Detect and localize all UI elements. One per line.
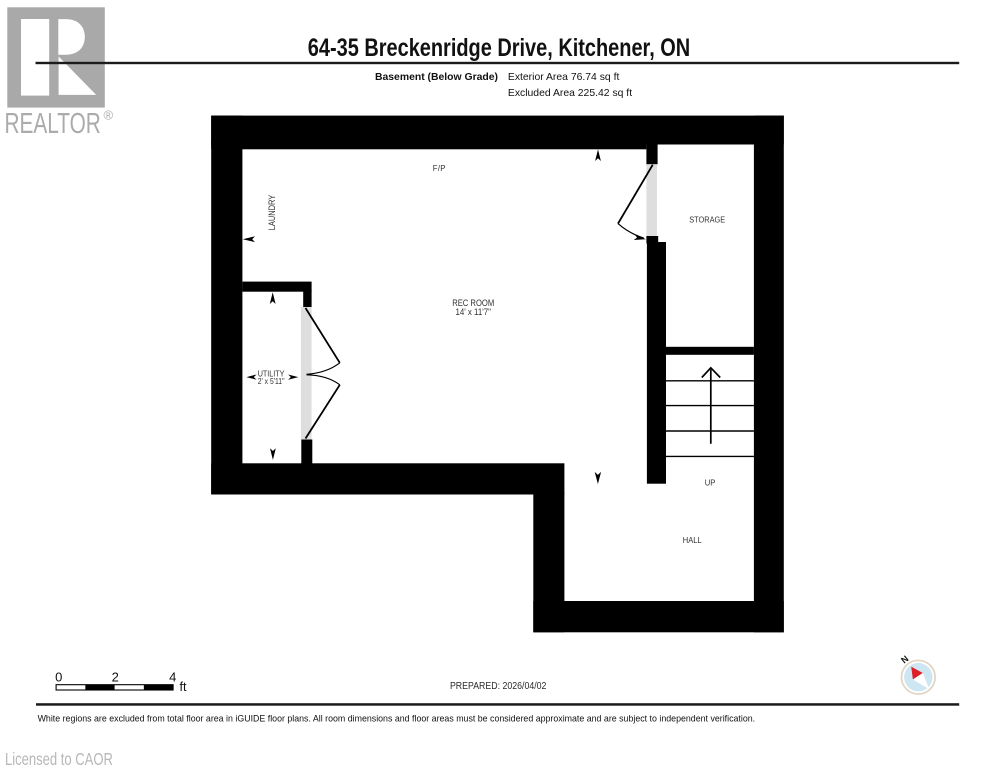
svg-text:2' x 5'11": 2' x 5'11" [258, 377, 285, 386]
svg-text:PREPARED: 2026/04/02: PREPARED: 2026/04/02 [450, 681, 547, 692]
svg-text:F/P: F/P [433, 164, 446, 173]
svg-text:0: 0 [55, 670, 62, 685]
svg-text:ft: ft [180, 680, 187, 694]
svg-text:2: 2 [112, 670, 119, 685]
svg-text:Licensed to CAOR: Licensed to CAOR [5, 750, 113, 768]
svg-text:4: 4 [169, 670, 176, 685]
svg-text:White regions are excluded fro: White regions are excluded from total fl… [38, 714, 756, 724]
svg-text:14' x 11'7": 14' x 11'7" [455, 307, 491, 317]
svg-text:HALL: HALL [683, 536, 702, 545]
svg-text:LAUNDRY: LAUNDRY [267, 195, 277, 231]
svg-text:STORAGE: STORAGE [689, 216, 725, 225]
svg-text:UP: UP [705, 478, 716, 487]
